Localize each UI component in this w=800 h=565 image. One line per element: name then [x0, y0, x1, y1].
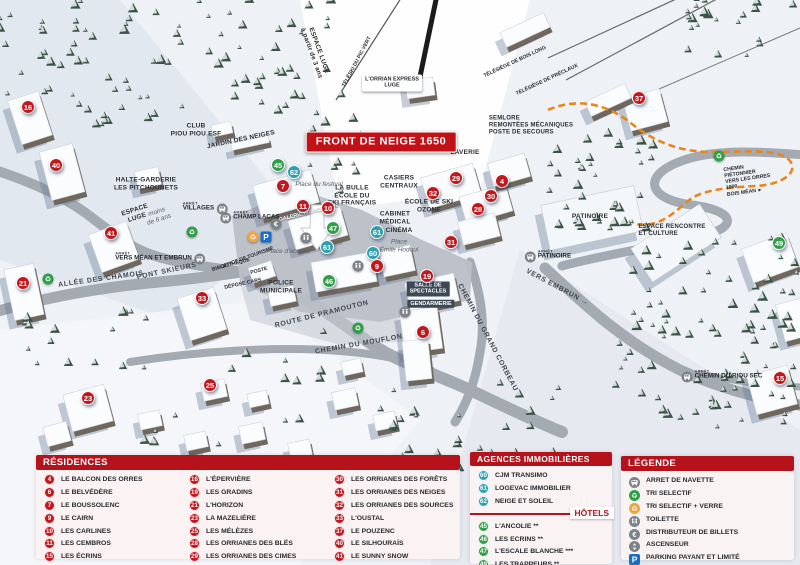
marker-number: 21 — [189, 500, 200, 511]
list-item: 47L'ESCALE BLANCHE *** — [478, 545, 606, 558]
marker-number: 7 — [44, 500, 55, 511]
map-marker-19: 19 — [420, 269, 434, 283]
marker-number: 15 — [44, 551, 55, 562]
agences-header: AGENCES IMMOBILIÈRES — [470, 452, 612, 466]
list-item: 16L'ÉPERVIÈRE — [189, 473, 334, 486]
residences-panel: RÉSIDENCES 4LE BALCON DES ORRES6LE BELVÉ… — [36, 455, 460, 559]
map-marker-7: 7 — [276, 179, 290, 193]
map-marker-11: 11 — [296, 199, 310, 213]
legend-item: ARRET DE NAVETTE — [629, 474, 788, 487]
map-marker-10: 10 — [321, 201, 335, 215]
recycle-icon: ♻ — [43, 274, 54, 285]
svg-text:♻: ♻ — [716, 152, 722, 161]
map-marker-46: 46 — [322, 274, 336, 288]
legend-item: PPARKING PAYANT ET LIMITÉ — [629, 551, 788, 564]
item-label: LE BOUSSOLENC — [61, 502, 120, 509]
item-label: LE POUZENC — [351, 528, 395, 535]
parking-icon: P — [261, 232, 272, 243]
list-item: 4LE BALCON DES ORRES — [44, 473, 189, 486]
item-label: LE SILHOURAÏS — [351, 540, 404, 547]
map-marker-25: 25 — [203, 378, 217, 392]
item-label: L'HORIZON — [206, 502, 243, 509]
map-marker-9: 9 — [370, 259, 384, 273]
list-item: 25LES MÉLÈZES — [189, 525, 334, 538]
list-item: 32LES ORRIANES DES SOURCES — [334, 499, 454, 512]
marker-number: 31 — [334, 487, 345, 498]
item-label: LES ORRIANES DES NEIGES — [351, 489, 445, 496]
map-marker-62: 62 — [287, 165, 301, 179]
marker-number: 28 — [189, 538, 200, 549]
svg-text:♻: ♻ — [355, 324, 361, 333]
item-label: LOGEVAC IMMOBILIER — [495, 485, 571, 492]
residences-header: RÉSIDENCES — [36, 455, 460, 470]
legend-label: TOILETTE — [646, 516, 679, 523]
list-item: 60CJM TRANSIMO — [478, 469, 606, 482]
list-item: 23LA MAZELIÈRE — [189, 512, 334, 525]
map-marker-40: 40 — [49, 158, 63, 172]
legende-header: LÉGENDE — [621, 456, 794, 471]
marker-number: 10 — [44, 526, 55, 537]
marker-number: 19 — [189, 487, 200, 498]
hotels-header: HÔTELS — [570, 507, 614, 519]
resort-map-page: ESPACE LUGE à partir de 3 ansTÉLÉSKI DU … — [0, 0, 800, 565]
marker-number: 6 — [44, 487, 55, 498]
marker-number: 9 — [44, 513, 55, 524]
list-item: 21L'HORIZON — [189, 499, 334, 512]
item-label: LES ÉCRINS — [61, 553, 102, 560]
list-item: 29LES ORRIANES DES CIMES — [189, 550, 334, 563]
map-marker-31: 31 — [444, 235, 458, 249]
list-item: 33L'OUSTAL — [334, 512, 454, 525]
toilet-icon — [301, 233, 312, 244]
map-marker-29: 29 — [449, 171, 463, 185]
marker-number: 16 — [189, 474, 200, 485]
legende-panel: LÉGENDE ARRET DE NAVETTE♻TRI SELECTIF♻TR… — [621, 456, 794, 560]
item-label: LES MÉLÈZES — [206, 528, 253, 535]
item-label: LES ORRIANES DES FORÊTS — [351, 476, 447, 483]
marker-number: 32 — [334, 500, 345, 511]
euro-icon: € — [271, 219, 282, 230]
map-marker-15: 15 — [773, 371, 787, 385]
recycle-verre-icon: ♻ — [629, 501, 640, 512]
tree — [694, 0, 700, 1]
elevator-icon — [629, 539, 640, 550]
svg-text:♻: ♻ — [631, 491, 637, 500]
legend-label: DISTRIBUTEUR DE BILLETS — [646, 529, 738, 536]
map-marker-61: 61 — [320, 240, 334, 254]
marker-number: 62 — [478, 496, 489, 507]
list-item: 41LE SUNNY SNOW — [334, 550, 454, 563]
legend-item: TOILETTE — [629, 513, 788, 526]
list-item: 46LES ECRINS ** — [478, 533, 606, 546]
legend-item: ♻TRI SELECTIF — [629, 487, 788, 500]
map-marker-4: 4 — [495, 174, 509, 188]
recycle-icon: ♻ — [353, 323, 364, 334]
recycle-verre-icon: ♻ — [248, 232, 259, 243]
list-item: 10LES CARLINES — [44, 525, 189, 538]
marker-number: 37 — [334, 526, 345, 537]
list-item: 30LES ORRIANES DES FORÊTS — [334, 473, 454, 486]
map-marker-61: 61 — [370, 225, 384, 239]
item-label: LES GRADINS — [206, 489, 252, 496]
item-label: L'ANCOLIE ** — [495, 523, 539, 530]
marker-number: 4 — [44, 474, 55, 485]
list-item: 28LES ORRIANES DES BLÉS — [189, 537, 334, 550]
legend-label: TRI SELECTIF — [646, 490, 692, 497]
hotels-divider: HÔTELS — [470, 513, 612, 515]
map-marker-23: 23 — [81, 391, 95, 405]
marker-number: 49 — [478, 559, 489, 565]
item-label: LE BALCON DES ORRES — [61, 476, 143, 483]
map-marker-60: 60 — [366, 246, 380, 260]
marker-number: 46 — [478, 534, 489, 545]
marker-number: 40 — [334, 538, 345, 549]
building-shape — [402, 339, 432, 381]
item-label: LES ORRIANES DES BLÉS — [206, 540, 293, 547]
marker-number: 29 — [189, 551, 200, 562]
parking-icon: P — [629, 552, 640, 563]
map-marker-30: 30 — [484, 189, 498, 203]
list-item: 37LE POUZENC — [334, 525, 454, 538]
recycle-icon: ♻ — [187, 227, 198, 238]
item-label: LES ORRIANES DES SOURCES — [351, 502, 453, 509]
item-label: L'ÉPERVIÈRE — [206, 476, 251, 483]
recycle-icon: ♻ — [629, 488, 640, 499]
map-marker-21: 21 — [16, 276, 30, 290]
recycle-icon: ♻ — [714, 151, 725, 162]
svg-text:♻: ♻ — [45, 275, 51, 284]
bus-icon — [629, 475, 640, 486]
hotels-list: 45L'ANCOLIE **46LES ECRINS **47L'ESCALE … — [470, 517, 612, 565]
item-label: LES CEMBROS — [61, 540, 111, 547]
item-label: LE BELVÉDÈRE — [61, 489, 113, 496]
agences-list: 60CJM TRANSIMO61LOGEVAC IMMOBILIER62NEIG… — [470, 466, 612, 510]
building-shape — [405, 77, 435, 99]
marker-number: 30 — [334, 474, 345, 485]
item-label: NEIGE ET SOLEIL — [495, 498, 553, 505]
legend-label: ARRET DE NAVETTE — [646, 477, 714, 484]
list-item: 45L'ANCOLIE ** — [478, 520, 606, 533]
list-item: 15LES ÉCRINS — [44, 550, 189, 563]
map-marker-28: 28 — [471, 202, 485, 216]
item-label: LES ECRINS ** — [495, 536, 543, 543]
map-marker-41: 41 — [104, 226, 118, 240]
list-item: 31LES ORRIANES DES NEIGES — [334, 486, 454, 499]
map-marker-33: 33 — [195, 291, 209, 305]
svg-text:♻: ♻ — [189, 228, 195, 237]
item-label: CJM TRANSIMO — [495, 472, 548, 479]
list-item: 11LES CEMBROS — [44, 537, 189, 550]
map-marker-6: 6 — [416, 325, 430, 339]
svg-text:P: P — [632, 556, 638, 565]
svg-text:P: P — [263, 233, 269, 242]
list-item: 7LE BOUSSOLENC — [44, 499, 189, 512]
legend-item: ASCENSEUR — [629, 538, 788, 551]
marker-number: 61 — [478, 483, 489, 494]
legend-label: PARKING PAYANT ET LIMITÉ — [646, 554, 740, 561]
map-marker-47: 47 — [326, 221, 340, 235]
item-label: LA MAZELIÈRE — [206, 515, 256, 522]
item-label: LE CAIRN — [61, 515, 93, 522]
marker-number: 11 — [44, 538, 55, 549]
toilet-icon — [400, 307, 411, 318]
map-marker-37: 37 — [632, 91, 646, 105]
legend-item: €DISTRIBUTEUR DE BILLETS — [629, 526, 788, 539]
list-item: 19LES GRADINS — [189, 486, 334, 499]
legend-label: ASCENSEUR — [646, 541, 689, 548]
list-item: 61LOGEVAC IMMOBILIER — [478, 482, 606, 495]
euro-icon: € — [629, 527, 640, 538]
list-item: 9LE CAIRN — [44, 512, 189, 525]
map-marker-32: 32 — [426, 186, 440, 200]
marker-number: 47 — [478, 546, 489, 557]
legend-label: TRI SELECTIF + VERRE — [646, 503, 723, 510]
svg-text:♻: ♻ — [631, 504, 637, 513]
marker-number: 25 — [189, 526, 200, 537]
map-marker-49: 49 — [772, 236, 786, 250]
marker-number: 41 — [334, 551, 345, 562]
item-label: LES TRAPPEURS ** — [495, 561, 559, 565]
marker-number: 23 — [189, 513, 200, 524]
map-marker-45: 45 — [271, 158, 285, 172]
svg-text:♻: ♻ — [250, 233, 256, 242]
residences-list: 4LE BALCON DES ORRES6LE BELVÉDÈRE7LE BOU… — [36, 470, 460, 565]
agences-panel: AGENCES IMMOBILIÈRES 60CJM TRANSIMO61LOG… — [470, 452, 612, 564]
item-label: LES CARLINES — [61, 528, 111, 535]
list-item: 6LE BELVÉDÈRE — [44, 486, 189, 499]
legende-list: ARRET DE NAVETTE♻TRI SELECTIF♻TRI SELECT… — [621, 471, 794, 565]
list-item: 40LE SILHOURAÏS — [334, 537, 454, 550]
item-label: LE SUNNY SNOW — [351, 553, 408, 560]
legend-item: ♻TRI SELECTIF + VERRE — [629, 500, 788, 513]
map-marker-16: 16 — [21, 100, 35, 114]
item-label: LES ORRIANES DES CIMES — [206, 553, 296, 560]
toilet-icon — [353, 261, 364, 272]
item-label: L'ESCALE BLANCHE *** — [495, 548, 573, 555]
list-item: 49LES TRAPPEURS ** — [478, 558, 606, 565]
toilet-icon — [629, 514, 640, 525]
marker-number: 45 — [478, 521, 489, 532]
marker-number: 33 — [334, 513, 345, 524]
item-label: L'OUSTAL — [351, 515, 384, 522]
marker-number: 60 — [478, 470, 489, 481]
